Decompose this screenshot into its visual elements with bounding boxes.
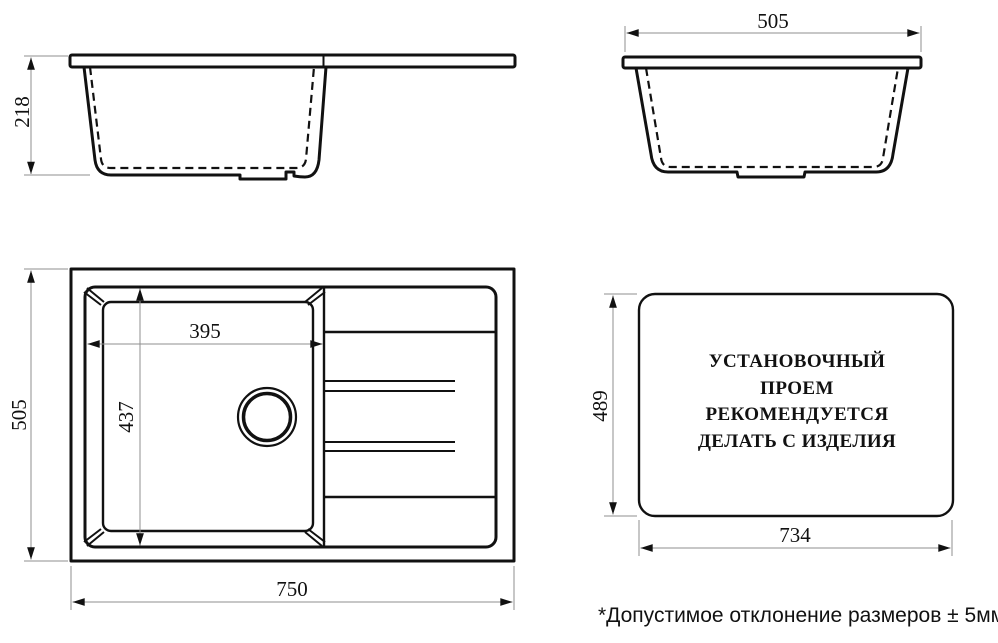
sink-drawing-svg: 218 505 505 750: [0, 0, 998, 643]
side-view-depth-label: 218: [10, 96, 34, 128]
bowl-length-label: 437: [114, 401, 138, 433]
end-view: 505: [623, 9, 921, 177]
cutout-text-line-4: ДЕЛАТЬ С ИЗДЕЛИЯ: [698, 431, 896, 452]
bowl-width-label: 395: [189, 319, 221, 343]
drain-inner-circle: [244, 394, 291, 441]
cutout-view: УСТАНОВОЧНЫЙ ПРОЕМ РЕКОМЕНДУЕТСЯ ДЕЛАТЬ …: [588, 294, 953, 556]
cutout-text-line-1: УСТАНОВОЧНЫЙ: [709, 350, 886, 372]
plan-view-width-label: 750: [276, 577, 308, 601]
technical-drawing-canvas: 218 505 505 750: [0, 0, 998, 643]
plan-view: 505 750: [7, 269, 514, 610]
plan-view-drainboard: [324, 332, 496, 497]
end-view-bowl-inner-dashed: [646, 68, 898, 167]
cutout-height-label: 489: [588, 390, 612, 422]
tolerance-footnote: *Допустимое отклонение размеров ± 5мм: [598, 604, 998, 627]
end-view-width-label: 505: [757, 9, 789, 33]
drain-outer-circle: [238, 388, 296, 446]
cutout-width-label: 734: [779, 523, 811, 547]
plan-view-height-label: 505: [7, 399, 31, 431]
side-view-bowl-outline: [84, 67, 326, 179]
cutout-text-line-2: ПРОЕМ: [760, 378, 834, 399]
plan-view-drain: [238, 388, 296, 446]
side-view: 218: [10, 55, 515, 179]
side-view-bowl-inner-dashed: [90, 67, 314, 168]
end-view-rim: [623, 57, 921, 68]
side-view-rim: [70, 55, 515, 67]
cutout-text-line-3: РЕКОМЕНДУЕТСЯ: [706, 404, 889, 425]
end-view-bowl-outline: [636, 68, 908, 177]
